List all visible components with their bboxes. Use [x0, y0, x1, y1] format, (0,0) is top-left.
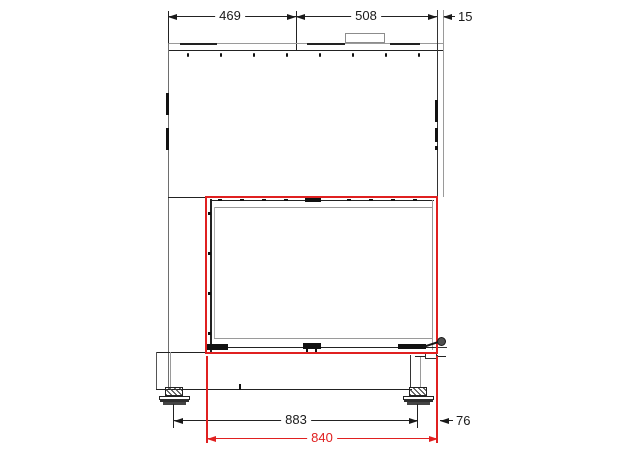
latch-mark [435, 146, 438, 150]
hinge-mark [435, 128, 438, 142]
dim-label-right-foot-offset: 76 [456, 414, 470, 428]
bolt-mark [385, 53, 387, 57]
dim-arrow-left-icon [443, 14, 452, 20]
bolt-mark [220, 53, 222, 57]
right-wall-outer-line [443, 10, 444, 197]
dim-arrow-left-icon [440, 418, 449, 424]
top-edge-line [168, 50, 443, 51]
base-right-inner-line [420, 356, 421, 387]
damper-knob [437, 337, 446, 346]
opening-top-line [168, 197, 206, 198]
top-plate-weld-mark [307, 43, 345, 45]
bolt-mark [253, 53, 255, 57]
left-foot-base [163, 402, 186, 405]
dim-arrow-left-icon [174, 418, 183, 424]
dim-arrow-right-icon [428, 14, 437, 20]
base-right-line [410, 355, 411, 387]
bolt-mark [352, 53, 354, 57]
top-plate-weld-mark [390, 43, 420, 45]
top-plate-weld-mark [180, 43, 217, 45]
base-left-inner-line [170, 352, 171, 387]
highlight-extension-line [436, 356, 438, 443]
base-bottom-line [156, 389, 412, 390]
dim-label-glass-width: 840 [307, 431, 337, 445]
dim-arrow-right-icon [429, 436, 438, 442]
dim-arrow-left-icon [296, 14, 305, 20]
dim-arrow-right-icon [287, 14, 296, 20]
dim-label-feet-span: 883 [281, 413, 311, 427]
technical-drawing-fireplace-front: 469 508 15 [0, 0, 624, 460]
extension-line [417, 404, 418, 428]
base-mark [239, 384, 241, 390]
bolt-mark [286, 53, 288, 57]
extension-line [173, 404, 174, 428]
dim-label-top-right: 508 [351, 9, 381, 23]
base-left-line [156, 352, 157, 390]
dim-label-top-left: 469 [215, 9, 245, 23]
hinge-mark [166, 128, 169, 150]
bolt-mark [319, 53, 321, 57]
dim-label-right-offset: 15 [458, 10, 472, 24]
hinge-mark [435, 100, 438, 122]
right-foot-base [407, 402, 430, 405]
bolt-mark [187, 53, 189, 57]
dim-arrow-left-icon [168, 14, 177, 20]
glass-opening-highlight [205, 196, 438, 354]
flue-collar [345, 33, 385, 43]
hearth-line [156, 352, 206, 353]
hinge-mark [166, 93, 169, 115]
highlight-extension-line [206, 356, 208, 443]
bolt-mark [418, 53, 420, 57]
dim-arrow-right-icon [409, 418, 418, 424]
dim-arrow-left-icon [207, 436, 216, 442]
